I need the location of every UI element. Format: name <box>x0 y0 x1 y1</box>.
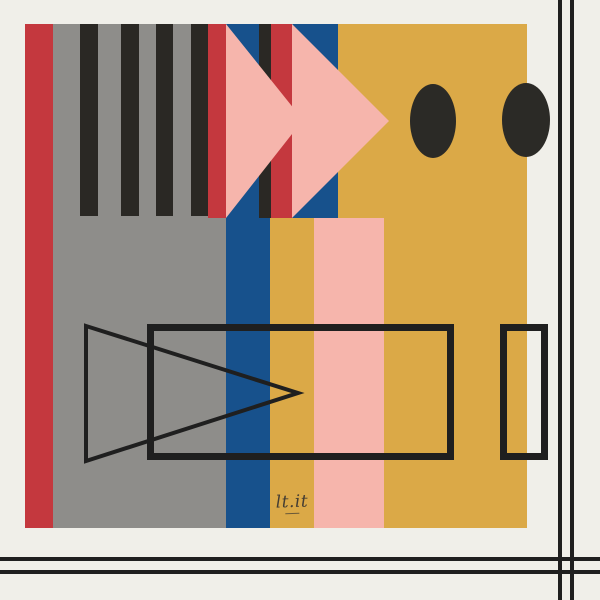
signature-text: lt.it <box>275 491 308 512</box>
artist-signature: lt.it <box>268 493 317 515</box>
frame-vertical-line-1 <box>558 0 562 600</box>
frame-horizontal-line-1 <box>0 557 600 561</box>
frame-horizontal-line-2 <box>0 570 600 574</box>
artwork-canvas: lt.it <box>0 0 600 600</box>
frame-vertical-line-2 <box>570 0 574 600</box>
